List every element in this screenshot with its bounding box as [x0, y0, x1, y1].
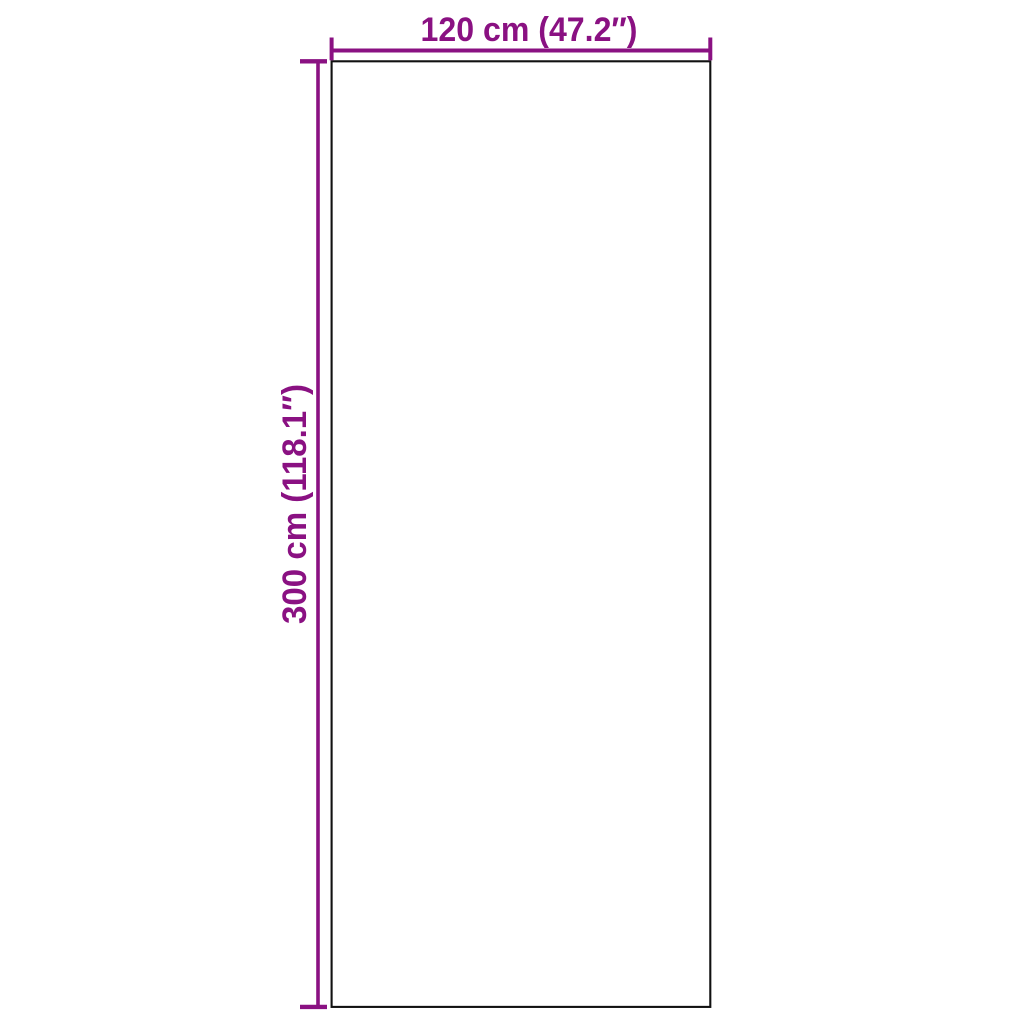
svg-text:120 cm (47.2″): 120 cm (47.2″): [421, 11, 638, 49]
svg-text:300 cm (118.1″): 300 cm (118.1″): [276, 384, 314, 624]
